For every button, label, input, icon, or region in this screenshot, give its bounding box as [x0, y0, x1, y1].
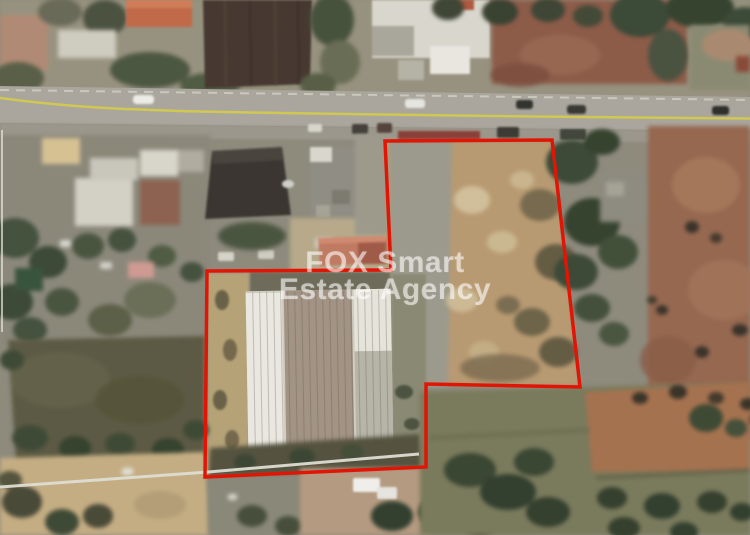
- aerial-photo-canvas: [0, 0, 750, 535]
- bottom-right-fields: [420, 382, 750, 535]
- bottom-left-tan-area: [0, 452, 210, 535]
- gray-building: [310, 147, 362, 227]
- salmon-roof-building: [318, 236, 390, 266]
- bottom-left-field: [0, 336, 209, 462]
- warehouse-building: [246, 289, 394, 450]
- plowed-field: [203, 0, 312, 88]
- dark-roof-building: [205, 147, 294, 261]
- orange-roof-building: [126, 0, 192, 27]
- far-right-top-field: [690, 25, 750, 90]
- satellite-image: FOX Smart Estate Agency: [0, 0, 750, 535]
- left-district: [0, 135, 210, 345]
